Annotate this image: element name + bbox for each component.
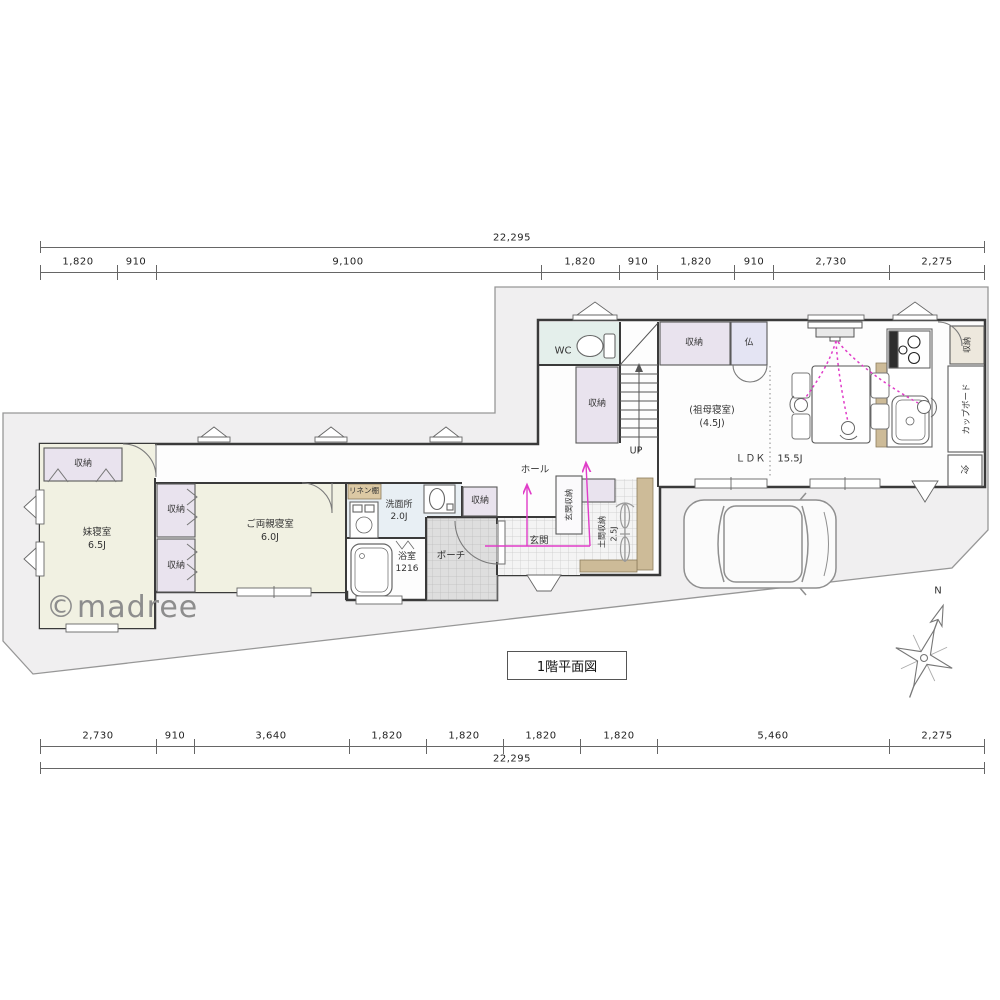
ldk-size: 15.5J [777, 452, 802, 466]
genkan-storage-label: 玄関収納 [564, 489, 575, 521]
storage-label-stairs: 収納 [588, 398, 606, 410]
grandmother-bedroom-label: (祖母寝室) (4.5J) [689, 405, 734, 431]
genkan-label: 玄関 [529, 536, 548, 549]
dim-label: 1,820 [680, 257, 711, 268]
grandmother-bedroom-name: (祖母寝室) [689, 405, 734, 416]
bathroom-label: 浴室 1216 [396, 551, 419, 575]
compass-north-label: N [934, 584, 941, 598]
dim-label: 1,820 [603, 731, 634, 742]
sister-bedroom-name: 妹寝室 [83, 527, 112, 538]
linen-closet-label: リネン棚 [349, 486, 379, 496]
dim-label: 1,820 [448, 731, 479, 742]
doma-storage-name: 土間収納 [597, 516, 608, 548]
dim-label: 1,820 [62, 257, 93, 268]
hall-label: ホール [521, 465, 550, 478]
dim-label: 1,820 [564, 257, 595, 268]
dim-label: 910 [628, 257, 649, 268]
dim-label: 1,820 [525, 731, 556, 742]
refrigerator-label: 冷 [960, 465, 969, 477]
dim-label: 2,730 [82, 731, 113, 742]
ldk-name: ＬＤＫ [735, 452, 765, 466]
floorplan-drawing [0, 0, 1000, 1000]
stairs-up-label: UP [630, 446, 643, 459]
dim-label: 2,275 [921, 731, 952, 742]
ldk-label: ＬＤＫ 15.5J [735, 452, 802, 466]
doma-storage-size: 2.5J [610, 526, 619, 541]
washing-machine [424, 485, 455, 513]
storage-label-top: 収納 [685, 337, 703, 349]
cupboard-label: カップボード [960, 383, 972, 434]
plan-title-text: 1階平面図 [537, 656, 597, 675]
dim-label: 910 [165, 731, 186, 742]
wc-label: WC [555, 344, 572, 358]
washroom-label: 洗面所 2.0J [385, 499, 412, 523]
dim-label: 910 [126, 257, 147, 268]
washroom-name: 洗面所 [385, 500, 412, 510]
sister-bedroom-label: 妹寝室 6.5J [83, 527, 112, 553]
dining-table [812, 366, 870, 443]
parents-bedroom-label: ご両親寝室 6.0J [246, 519, 294, 545]
storage-label-closet1: 収納 [167, 504, 185, 516]
butsudan-label: 仏 [744, 337, 753, 349]
dim-label: 3,640 [255, 731, 286, 742]
compass-rose [881, 595, 971, 708]
doma-step-bottom [580, 560, 637, 572]
storage-label-closet2: 収納 [167, 560, 185, 572]
toilet [577, 334, 615, 358]
dim-label: 2,730 [815, 257, 846, 268]
vanity-cabinet [350, 502, 378, 538]
watermark: ©madree [46, 590, 198, 625]
dim-label: 9,100 [332, 257, 363, 268]
grandmother-bedroom-size: (4.5J) [689, 418, 734, 431]
dim-label: 5,460 [757, 731, 788, 742]
bathroom-size: 1216 [396, 563, 419, 575]
porch-label: ポーチ [437, 551, 466, 564]
bathroom-name: 浴室 [398, 552, 416, 562]
dim-label-total-top: 22,295 [493, 233, 531, 244]
storage-label-hall: 収納 [471, 495, 489, 507]
plan-title: 1階平面図 [507, 651, 627, 680]
washroom-size: 2.0J [385, 511, 412, 523]
dim-label-total-bottom: 22,295 [493, 754, 531, 765]
floorplan-canvas: WC 収納 UP 収納 仏 (祖母寝室) (4.5J) ＬＤＫ 15.5J カッ… [0, 0, 1000, 1000]
parents-bedroom-name: ご両親寝室 [246, 519, 294, 530]
dim-label: 1,820 [371, 731, 402, 742]
dim-label: 910 [744, 257, 765, 268]
doma-step-side [637, 478, 653, 570]
parents-bedroom-size: 6.0J [246, 532, 294, 545]
sister-bedroom-size: 6.5J [83, 540, 112, 553]
car [684, 493, 836, 595]
dim-label: 2,275 [921, 257, 952, 268]
storage-label-kitchen: 収納 [962, 337, 973, 353]
storage-label-sister: 収納 [74, 458, 92, 470]
